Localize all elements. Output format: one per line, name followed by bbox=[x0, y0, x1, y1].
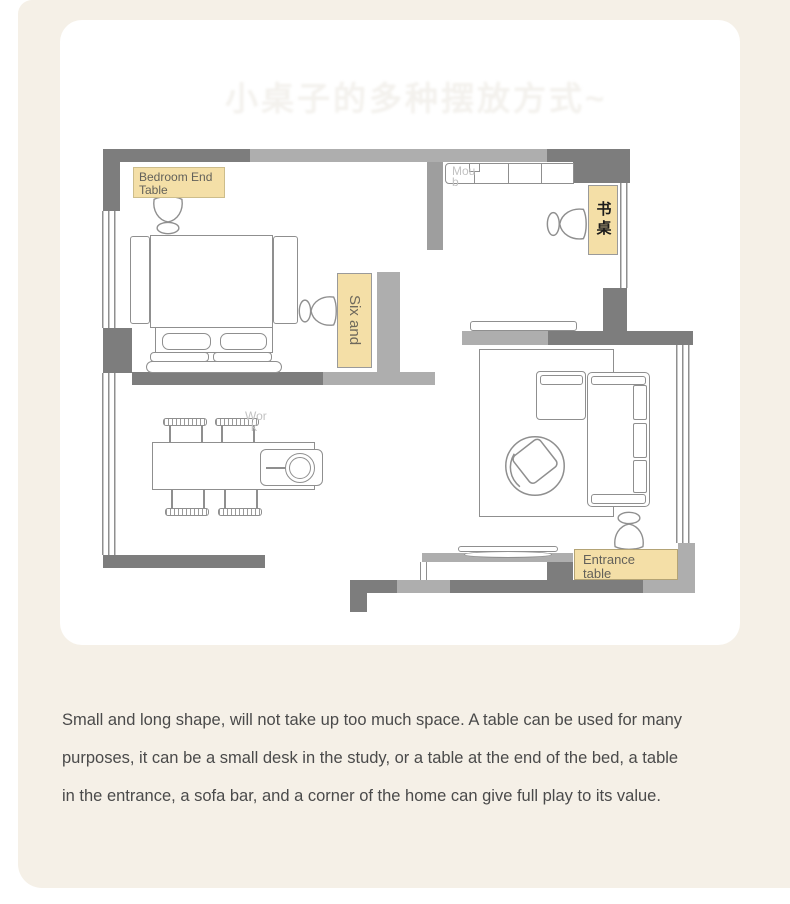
cooktop-burner-inner bbox=[289, 457, 311, 479]
work-ghost-label: Wor k bbox=[245, 411, 267, 433]
sofa-arm-top bbox=[591, 376, 646, 385]
tv-stand-oval bbox=[464, 551, 552, 558]
desk-label: 书桌 bbox=[588, 185, 618, 255]
wall-bottom-left bbox=[103, 555, 265, 568]
bed-bench bbox=[146, 361, 282, 373]
dining-chair-leg bbox=[171, 490, 173, 508]
window-left-lower bbox=[102, 373, 120, 555]
wall-right-chunk bbox=[603, 288, 627, 332]
wall-hall-block bbox=[547, 562, 573, 580]
dining-chair-leg bbox=[221, 426, 223, 443]
dining-chair-back bbox=[163, 418, 207, 426]
dining-chair-back bbox=[165, 508, 209, 516]
ghost-line: k bbox=[245, 422, 267, 433]
description-line-2: purposes, it can be a small desk in the … bbox=[62, 739, 742, 777]
window-living-right bbox=[676, 345, 693, 543]
window-upper-right bbox=[620, 183, 630, 288]
wall-entry-l-vertical bbox=[350, 580, 367, 612]
label-line: Table bbox=[139, 184, 219, 197]
dining-chair-leg bbox=[201, 426, 203, 443]
page-root: { "colors": { "panel_bg": "#f5f0e7", "ca… bbox=[0, 0, 790, 904]
wall-bedroom-bottom-dark bbox=[132, 372, 323, 385]
wardrobe-cell bbox=[508, 163, 542, 184]
bed-pillow-right bbox=[220, 333, 267, 350]
sofa-arm-bottom bbox=[591, 494, 646, 504]
bed-body bbox=[150, 235, 273, 328]
bed-pillow-left bbox=[162, 333, 211, 350]
swivel-chair-icon bbox=[502, 433, 568, 499]
dining-chair-leg bbox=[203, 490, 205, 508]
sofa-back-cushion bbox=[633, 385, 647, 420]
wall-middle-divider bbox=[427, 162, 443, 250]
label-line: Entrance bbox=[583, 553, 672, 567]
wall-top-left bbox=[103, 149, 250, 162]
dining-chair-leg bbox=[169, 426, 171, 443]
wall-top-middle bbox=[250, 149, 547, 162]
six-and-chair-icon bbox=[298, 291, 338, 331]
label-line: table bbox=[583, 567, 672, 581]
ghost-line: b bbox=[452, 177, 475, 188]
window-left-upper bbox=[102, 211, 120, 328]
wall-bottom-dark bbox=[450, 580, 643, 593]
sofa-back-cushion bbox=[633, 460, 647, 493]
description-text: Small and long shape, will not take up t… bbox=[62, 701, 742, 815]
six-and-label: Six and bbox=[337, 273, 372, 368]
wall-left-middle bbox=[103, 328, 132, 373]
wall-left-top bbox=[103, 149, 120, 211]
wardrobe-ghost-label: Mou b bbox=[452, 166, 475, 188]
bed-side-table-left bbox=[130, 236, 150, 324]
wall-six-and-strip bbox=[377, 272, 400, 385]
entrance-table-label: Entrance table bbox=[574, 549, 678, 580]
dining-chair-back bbox=[218, 508, 262, 516]
entrance-chair-icon bbox=[608, 511, 650, 551]
wall-living-top-dark bbox=[548, 331, 693, 345]
bed-side-table-right bbox=[273, 236, 298, 324]
desk-chair-icon bbox=[546, 203, 588, 245]
sofa-chaise-cushion bbox=[540, 375, 583, 385]
description-line-3: in the entrance, a sofa bar, and a corne… bbox=[62, 777, 742, 815]
door-jamb bbox=[420, 562, 427, 580]
wall-living-top-light bbox=[462, 331, 548, 345]
wardrobe-cell bbox=[541, 163, 574, 184]
dining-chair-leg bbox=[224, 490, 226, 508]
sofa-back-cushion bbox=[633, 423, 647, 458]
bedroom-end-table-label: Bedroom End Table bbox=[133, 167, 225, 198]
wall-top-right-corner bbox=[573, 161, 630, 183]
wall-bottom-light-2 bbox=[643, 580, 695, 593]
description-line-1: Small and long shape, will not take up t… bbox=[62, 701, 742, 739]
cooktop-handle bbox=[266, 467, 286, 469]
dining-chair-leg bbox=[256, 490, 258, 508]
shelf bbox=[470, 321, 577, 331]
wall-bottom-light-1 bbox=[397, 580, 450, 593]
bedroom-end-chair-icon bbox=[146, 195, 190, 235]
